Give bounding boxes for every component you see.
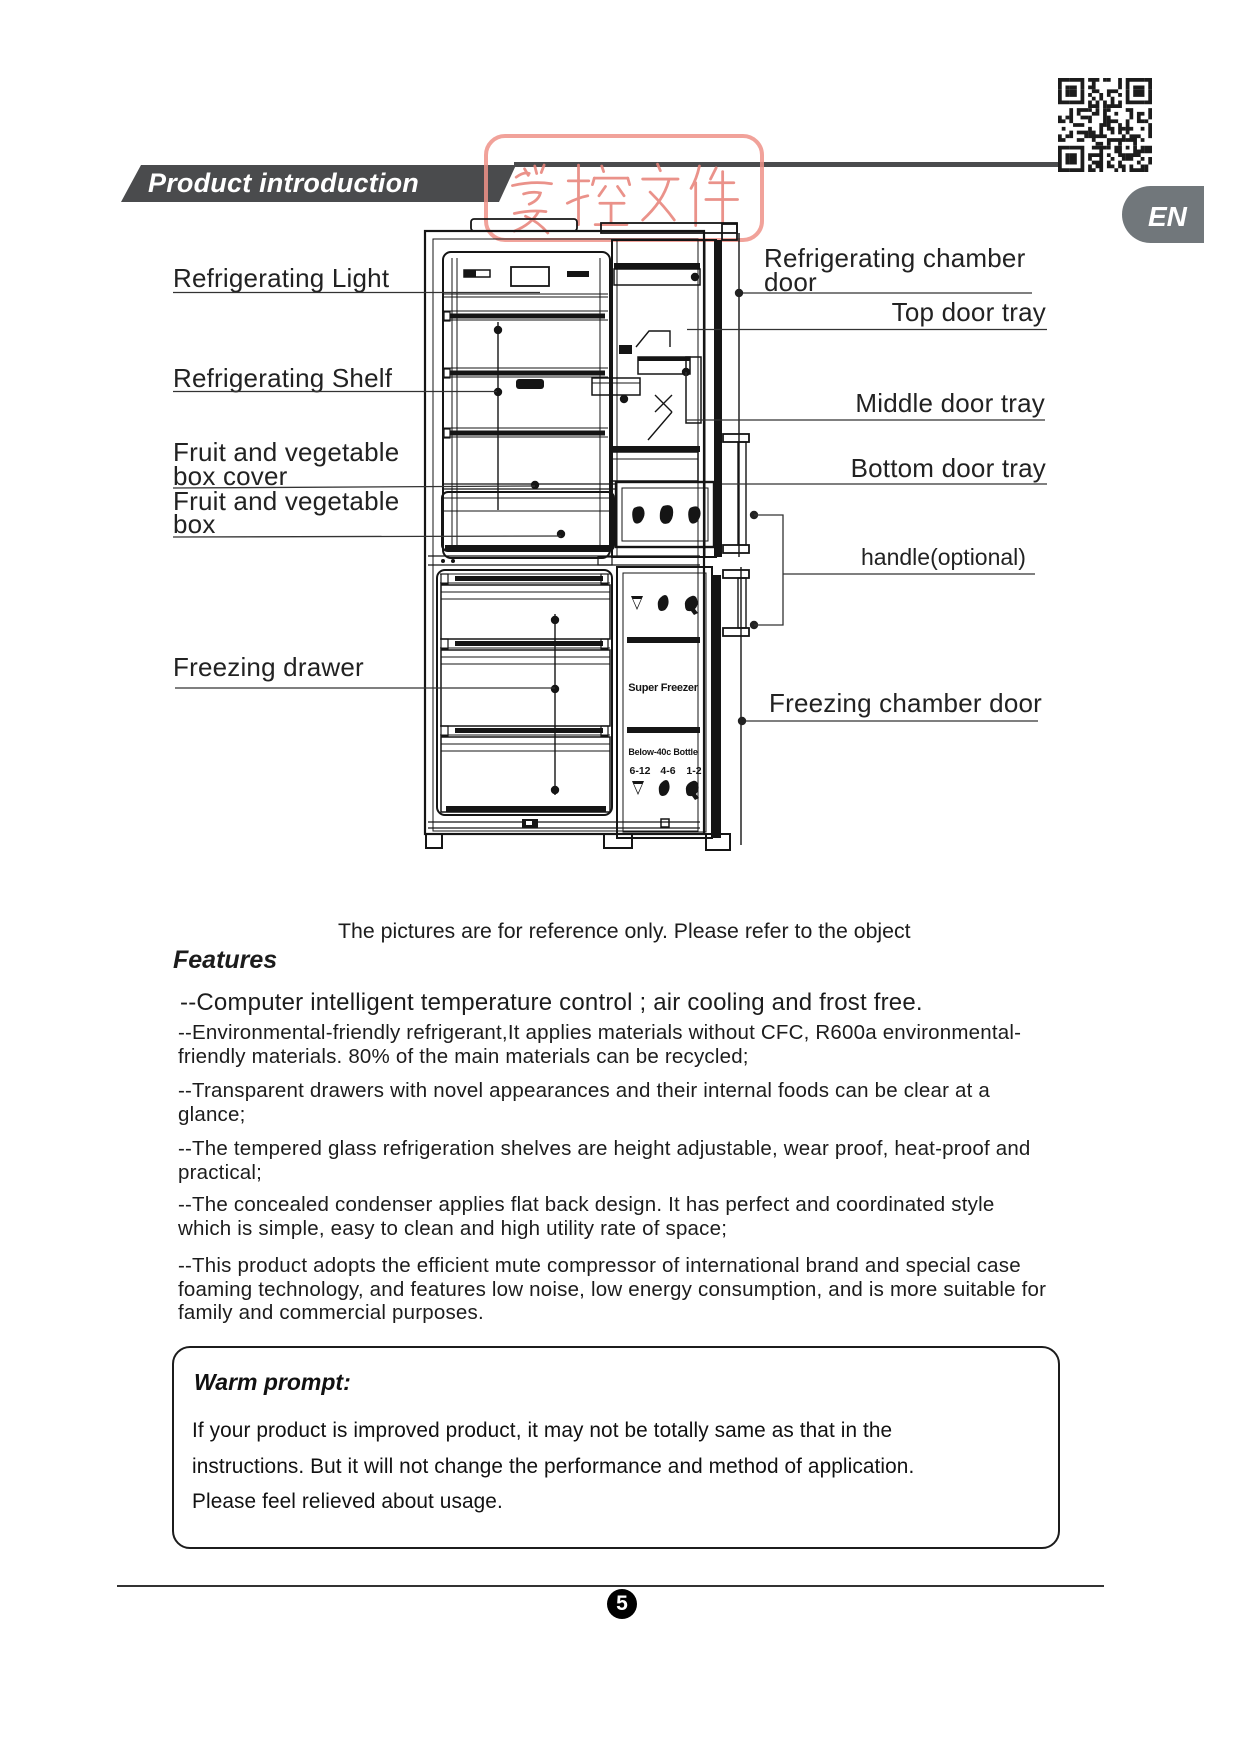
svg-text:Top door tray: Top door tray — [892, 297, 1046, 327]
svg-text:box: box — [173, 509, 216, 539]
svg-text:Freezing chamber door: Freezing chamber door — [769, 688, 1042, 718]
svg-text:Below-40c Bottle: Below-40c Bottle — [628, 747, 698, 757]
svg-text:Refrigerating Light: Refrigerating Light — [173, 263, 390, 293]
svg-text:Super Freezer: Super Freezer — [628, 682, 698, 694]
svg-text:Refrigerating Shelf: Refrigerating Shelf — [173, 363, 393, 393]
svg-text:Freezing drawer: Freezing drawer — [173, 652, 364, 682]
svg-text:4-6: 4-6 — [660, 765, 675, 777]
svg-text:1-2: 1-2 — [686, 765, 701, 777]
svg-text:handle(optional): handle(optional) — [861, 544, 1026, 570]
svg-text:Bottom door tray: Bottom door tray — [851, 453, 1046, 483]
svg-text:Middle door tray: Middle door tray — [855, 388, 1045, 418]
svg-text:6-12: 6-12 — [629, 765, 650, 777]
